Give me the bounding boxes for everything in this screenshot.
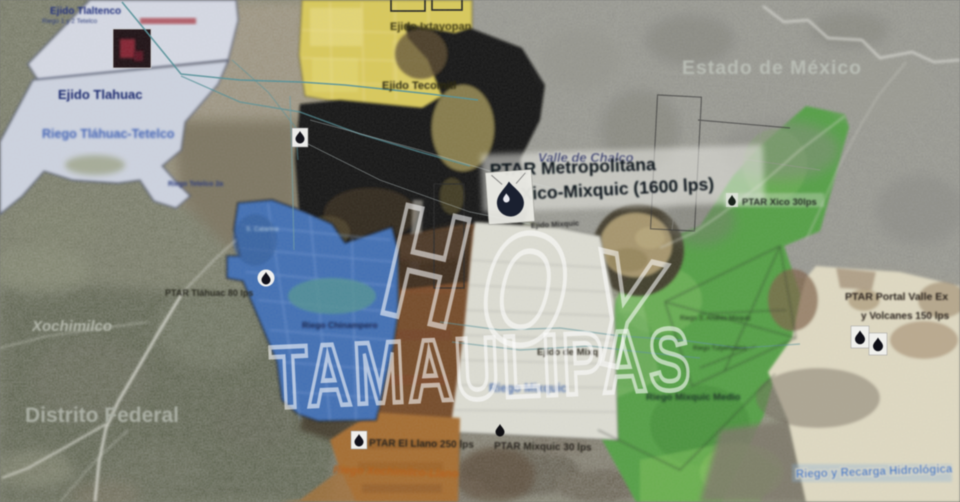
- svg-text:Estado de México: Estado de México: [682, 57, 862, 79]
- svg-text:y Volcanes 150 lps: y Volcanes 150 lps: [861, 311, 950, 322]
- svg-text:TAMAULIPAS: TAMAULIPAS: [268, 310, 695, 428]
- svg-text:Riego Tulyehualco: Riego Tulyehualco: [693, 345, 747, 352]
- svg-text:Distrito Federal: Distrito Federal: [25, 404, 179, 427]
- svg-text:PTAR Portal Valle Ex: PTAR Portal Valle Ex: [845, 291, 948, 303]
- svg-text:Riego Tláhuac-Tetelco: Riego Tláhuac-Tetelco: [42, 127, 175, 141]
- svg-text:PTAR Tláhuac 80 lps: PTAR Tláhuac 80 lps: [165, 288, 253, 298]
- svg-text:PTAR Xico 30lps: PTAR Xico 30lps: [742, 197, 817, 208]
- svg-text:PTAR Mixquic 30 lps: PTAR Mixquic 30 lps: [494, 441, 592, 454]
- svg-text:Xochimilco: Xochimilco: [31, 318, 112, 335]
- svg-text:PTAR El Llano 250 lps: PTAR El Llano 250 lps: [369, 438, 474, 451]
- svg-text:Riego 1 y 2 Tetelco: Riego 1 y 2 Tetelco: [42, 18, 98, 25]
- svg-text:Ejido Tlaltenco: Ejido Tlaltenco: [50, 6, 121, 17]
- svg-text:Ejido Tlahuac: Ejido Tlahuac: [58, 87, 143, 102]
- svg-text:Riego Tetelco 2a: Riego Tetelco 2a: [168, 181, 223, 188]
- svg-text:Ejido Tecomitl: Ejido Tecomitl: [382, 80, 456, 92]
- svg-text:S. Catarina: S. Catarina: [246, 226, 279, 233]
- svg-text:Ejido Ixtayopan: Ejido Ixtayopan: [390, 21, 472, 33]
